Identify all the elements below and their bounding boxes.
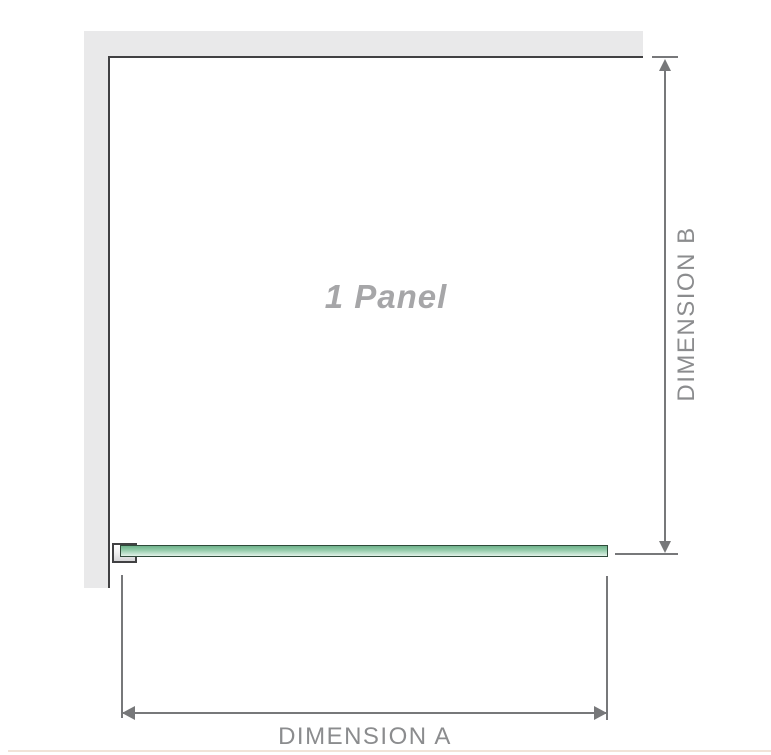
diagram-canvas: 1 Panel DIMENSION B DIMENSION A <box>0 0 771 755</box>
dimension-b-label: DIMENSION B <box>673 226 701 401</box>
dimension-b-tick-top <box>652 56 678 58</box>
dimension-a-arrow-left-icon <box>122 706 135 720</box>
dimension-b-arrow-down-icon <box>659 541 671 553</box>
wall-inner-edge-top <box>109 56 643 58</box>
wall-top <box>84 31 643 57</box>
panel-count-label: 1 Panel <box>325 278 448 316</box>
dimension-b-line <box>664 61 666 551</box>
wall-inner-edge-left <box>108 56 110 588</box>
dimension-b-arrow-up-icon <box>659 59 671 71</box>
dimension-a-line <box>123 712 607 714</box>
baseline-accent <box>8 750 771 752</box>
dimension-a-extension-right <box>606 576 608 720</box>
dimension-b-tick-bottom <box>615 553 678 555</box>
dimension-a-label: DIMENSION A <box>278 723 452 751</box>
dimension-a-extension-left <box>121 575 123 718</box>
glass-panel <box>120 545 608 557</box>
wall-left <box>84 31 109 588</box>
dimension-a-arrow-right-icon <box>594 706 607 720</box>
